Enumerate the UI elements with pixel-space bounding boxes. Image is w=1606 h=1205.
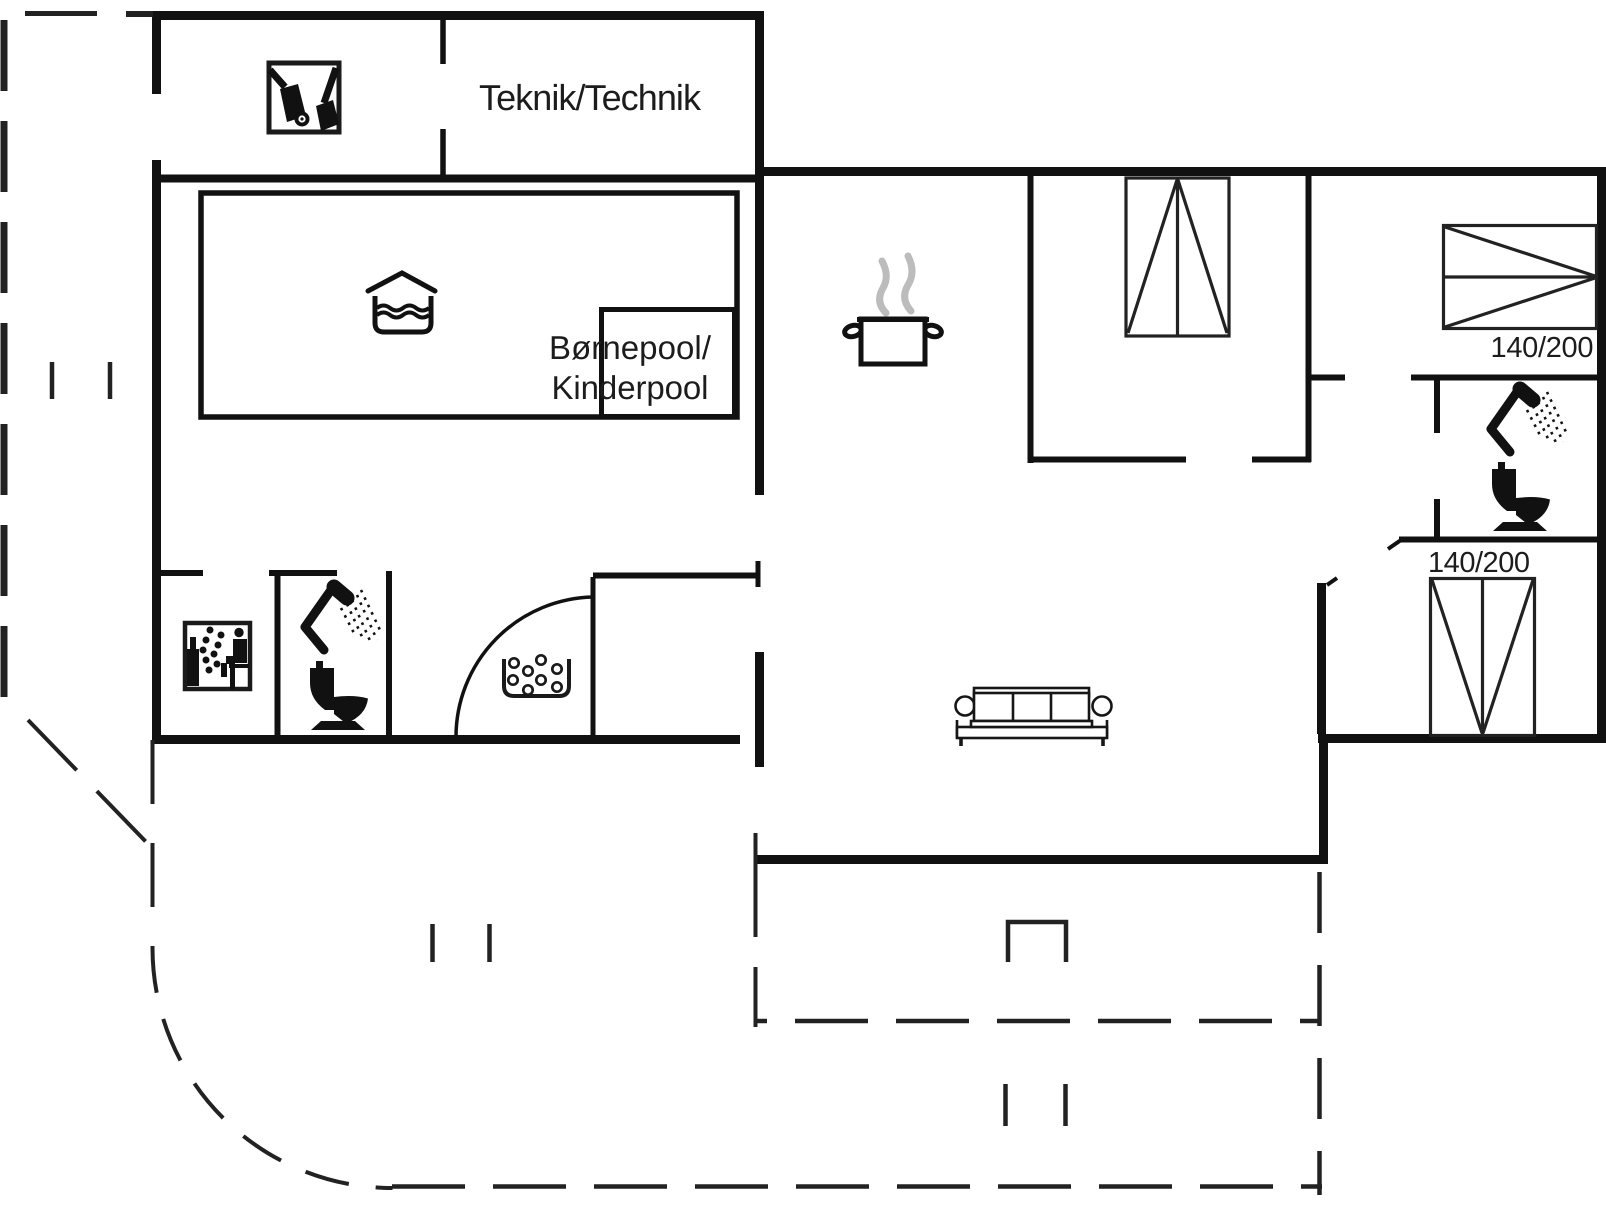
svg-text:Børnepool/: Børnepool/: [549, 329, 712, 366]
svg-text:140/200: 140/200: [1428, 547, 1530, 579]
svg-text:140/200: 140/200: [1491, 332, 1594, 364]
svg-text:Teknik/Technik: Teknik/Technik: [479, 77, 702, 118]
svg-text:Kinderpool: Kinderpool: [552, 369, 709, 406]
